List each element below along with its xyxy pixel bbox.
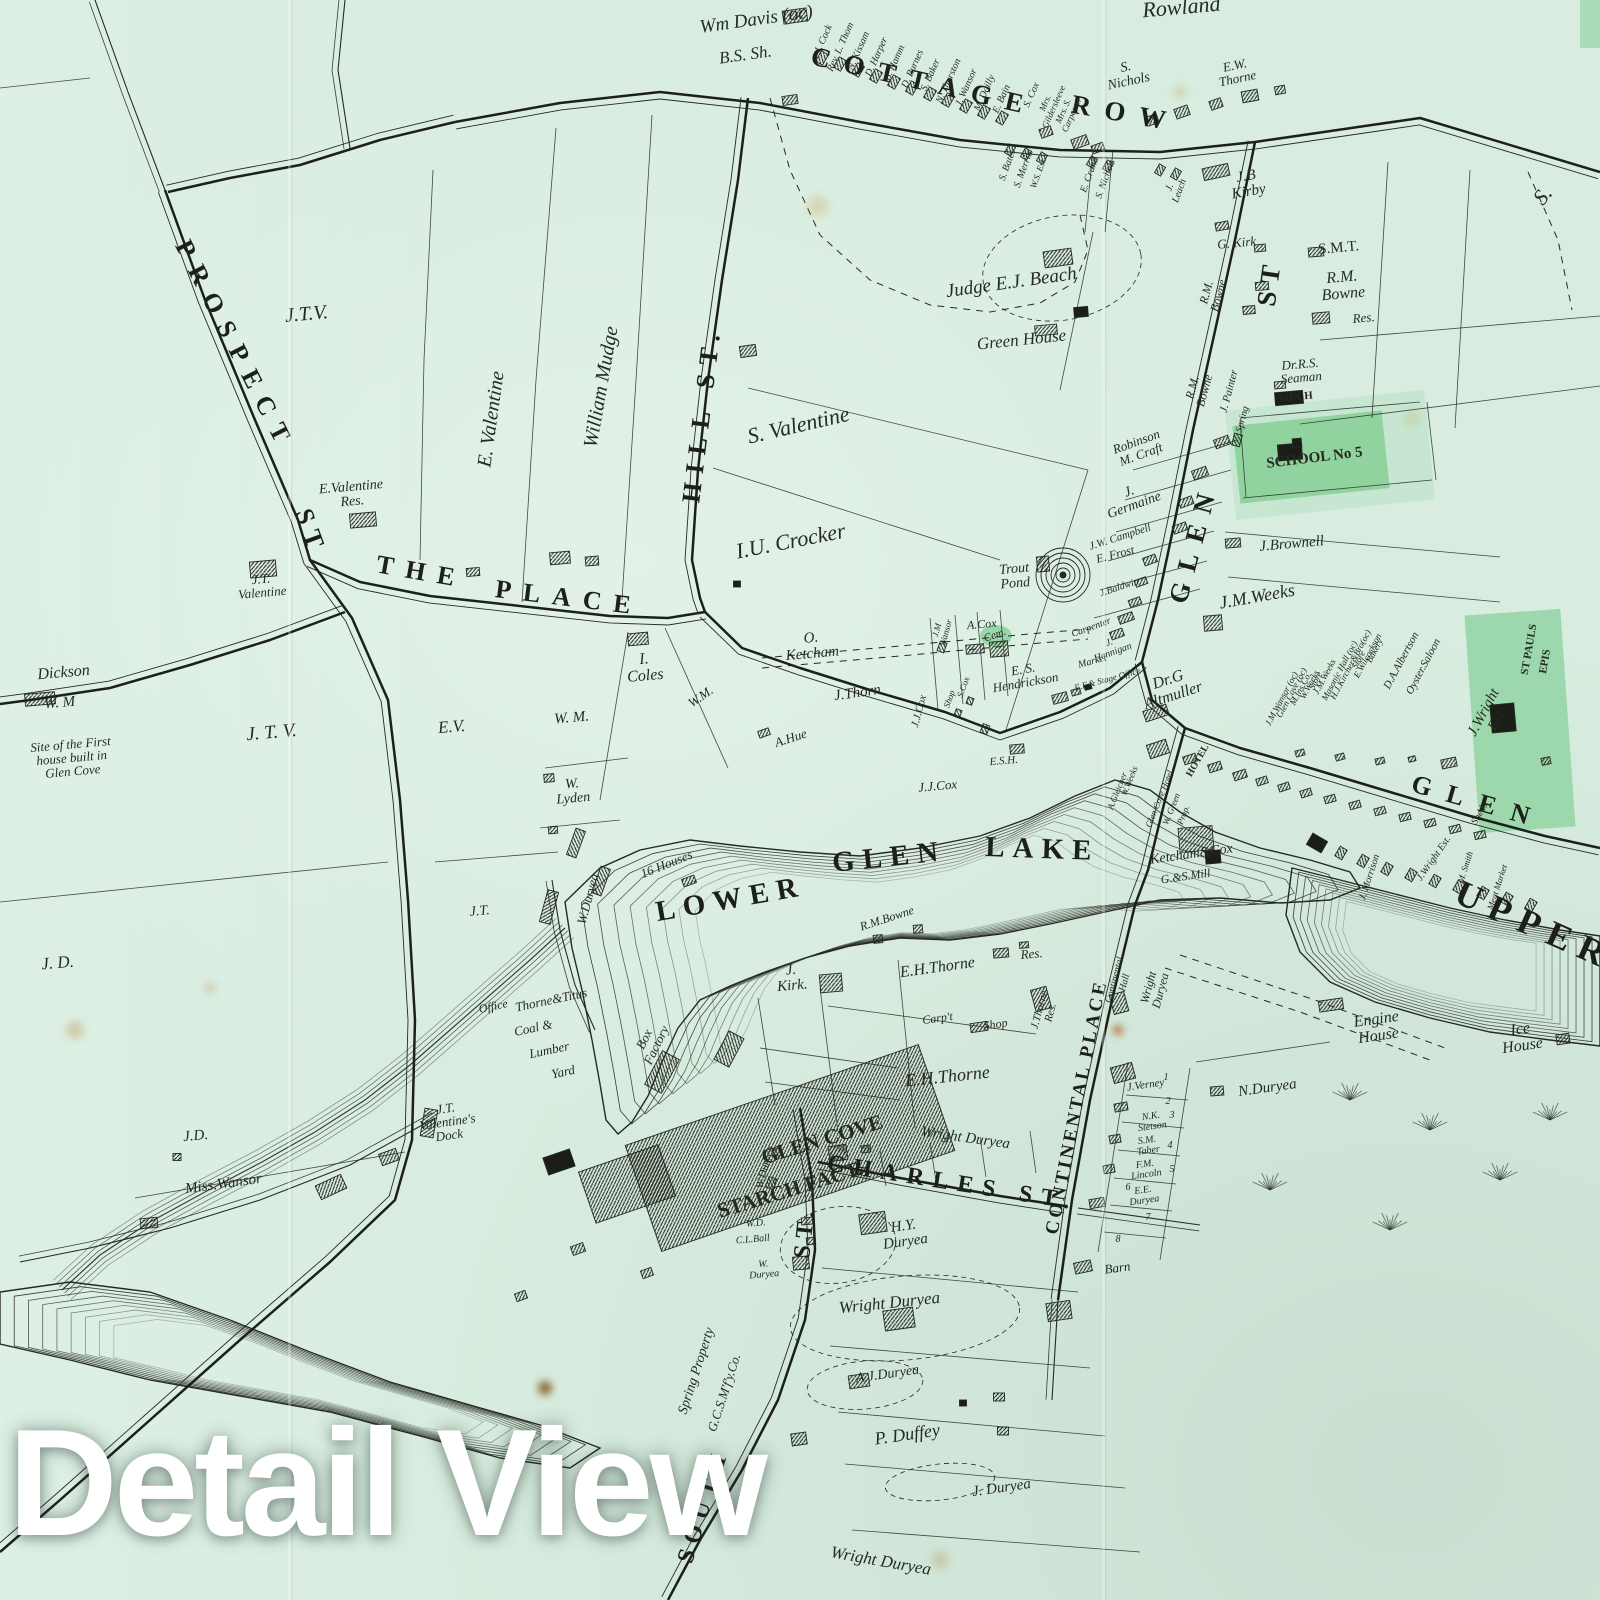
- parcel-line: [435, 852, 558, 862]
- map-label: Rowland: [1140, 0, 1222, 22]
- building: [1274, 85, 1285, 95]
- building: [567, 828, 586, 858]
- building: [1256, 776, 1269, 786]
- map-label: Site of the Firsthouse built inGlen Cove: [30, 733, 114, 782]
- svg-text:I.U. Crocker: I.U. Crocker: [733, 518, 848, 564]
- map-label: Barn: [1103, 1258, 1131, 1276]
- parcel-line: [1455, 170, 1470, 428]
- svg-text:S.Nichols: S.Nichols: [1102, 56, 1152, 94]
- svg-text:J. Duryea: J. Duryea: [971, 1476, 1032, 1500]
- map-label: J.T.Valentine: [236, 569, 287, 602]
- map-label: Green House: [976, 325, 1067, 353]
- building: [758, 728, 771, 738]
- svg-text:Office: Office: [477, 996, 509, 1016]
- building: [966, 697, 974, 706]
- map-label: S. Valentine: [745, 401, 852, 449]
- building: [782, 94, 798, 105]
- map-label: 2: [1166, 1096, 1171, 1107]
- map-image: COTTAGEROWPROSPECTSTTHEPLACEHILL ST.GLEN…: [0, 0, 1600, 1600]
- street-name-label: HILL ST.: [676, 324, 727, 505]
- svg-text:N.Duryea: N.Duryea: [1236, 1076, 1297, 1100]
- building: [791, 1432, 808, 1446]
- building: [1209, 98, 1223, 111]
- svg-text:3: 3: [1169, 1110, 1175, 1121]
- map-label: J. Painter: [1218, 368, 1241, 414]
- road-edge-bold: [0, 190, 415, 1552]
- building: [989, 641, 1008, 658]
- map-label: W.Duryea: [574, 871, 602, 925]
- svg-text:J.T.: J.T.: [469, 903, 490, 920]
- green-lot: [1580, 0, 1600, 48]
- building: [954, 709, 962, 718]
- svg-text:E.H.Thorne: E.H.Thorne: [898, 954, 976, 981]
- svg-text:H.Y.Duryea: H.Y.Duryea: [879, 1215, 929, 1253]
- street-name-label: PROSPECT: [169, 235, 301, 457]
- svg-text:R.M.Bowne: R.M.Bowne: [1319, 267, 1365, 304]
- svg-text:J. Painter: J. Painter: [1218, 368, 1241, 414]
- svg-text:Thorne&Titus: Thorne&Titus: [514, 985, 588, 1015]
- building: [1408, 756, 1416, 763]
- map-label: 8: [1116, 1234, 1121, 1245]
- map-label: H.Y.Duryea: [879, 1215, 929, 1253]
- map-label: F.M.Lincoln: [1128, 1157, 1162, 1183]
- map-label: W. M.: [554, 709, 590, 728]
- map-label: S.Cox: [955, 675, 972, 698]
- parcel-line: [522, 128, 556, 602]
- building: [543, 1149, 575, 1175]
- building: [1541, 757, 1551, 766]
- street-name-label: CHARLES ST.: [825, 1150, 1081, 1216]
- map-label: C.L.Ball: [735, 1233, 770, 1247]
- paper-stain: [204, 982, 216, 994]
- building: [1203, 615, 1222, 632]
- street-name-label: LOWER: [653, 870, 807, 928]
- building: [1225, 538, 1241, 548]
- map-label: R.M.Bowne: [857, 903, 916, 934]
- svg-text:William Mudge: William Mudge: [580, 324, 623, 449]
- svg-text:PROSPECT: PROSPECT: [169, 235, 301, 457]
- road-edge-thin: [338, 0, 350, 148]
- street-name-label: ROW: [1069, 89, 1182, 138]
- svg-text:C.L.Ball: C.L.Ball: [735, 1233, 770, 1247]
- building: [859, 1211, 888, 1234]
- parcel-line: [0, 862, 388, 902]
- parcel-line: [830, 1346, 1090, 1368]
- map-label: 4: [1168, 1140, 1173, 1151]
- svg-text:HILL ST.: HILL ST.: [676, 324, 727, 505]
- svg-text:E.E.Duryea: E.E.Duryea: [1126, 1183, 1160, 1209]
- map-label: Wm Davis (oc): [698, 1, 814, 38]
- svg-text:Miss.Wansor: Miss.Wansor: [183, 1171, 263, 1198]
- paper-stain: [1404, 410, 1420, 426]
- building: [550, 551, 571, 565]
- parcel-line: [852, 1530, 1140, 1552]
- parcel-line: [1126, 1095, 1188, 1100]
- building: [1278, 782, 1291, 792]
- road-edge-thin: [95, 0, 165, 190]
- grass-tuft: [1333, 1083, 1367, 1100]
- building: [1233, 769, 1248, 781]
- svg-text:8: 8: [1116, 1234, 1121, 1245]
- building: [1241, 89, 1259, 103]
- svg-text:J.Thorn: J.Thorn: [833, 682, 882, 704]
- map-label: J. Duryea: [971, 1476, 1032, 1500]
- svg-text:A.J.Duryea: A.J.Duryea: [854, 1363, 920, 1387]
- svg-text:Wm Davis (oc): Wm Davis (oc): [698, 1, 814, 38]
- svg-text:7: 7: [1146, 1212, 1152, 1223]
- building: [1381, 862, 1393, 876]
- svg-text:J.J.Cox: J.J.Cox: [918, 776, 958, 794]
- map-label: J.J.Cox: [909, 694, 929, 729]
- paper-crease: [1102, 0, 1105, 1600]
- map-label: Office: [477, 996, 509, 1016]
- map-label: 6: [1126, 1182, 1131, 1193]
- parcel-line: [1030, 1131, 1036, 1173]
- svg-text:Yard: Yard: [550, 1062, 577, 1082]
- building: [1210, 1086, 1224, 1096]
- map-label: R.M.Bowne: [1195, 274, 1229, 313]
- svg-text:W.Duryea: W.Duryea: [574, 871, 602, 925]
- building: [1306, 833, 1327, 853]
- parcel-line: [758, 998, 775, 1105]
- svg-text:S.Cox: S.Cox: [955, 675, 972, 698]
- map-label: E.W.Thorne: [1215, 54, 1258, 90]
- building: [1474, 830, 1486, 839]
- road-edge-thin: [89, 2, 159, 192]
- svg-text:O.Ketcham: O.Ketcham: [783, 628, 840, 664]
- svg-text:LAKE: LAKE: [985, 831, 1100, 867]
- svg-text:S.M.Taber: S.M.Taber: [1135, 1133, 1161, 1157]
- map-label: S.Nichols: [1102, 56, 1152, 94]
- map-label: J.Germaine: [1100, 475, 1163, 522]
- building: [994, 1393, 1005, 1401]
- building: [1374, 806, 1387, 816]
- map-label: Res.: [1019, 945, 1043, 962]
- building: [1243, 305, 1256, 314]
- building: [913, 925, 923, 934]
- svg-text:P. Duffey: P. Duffey: [872, 1420, 941, 1449]
- building: [1143, 554, 1158, 566]
- map-label: 7: [1146, 1212, 1152, 1223]
- map-label: RobinsonM. Craft: [1110, 426, 1167, 470]
- map-label: W.D.: [746, 1217, 767, 1230]
- map-label: Shop: [941, 688, 957, 709]
- building: [1335, 753, 1345, 761]
- building: [514, 1290, 527, 1301]
- svg-text:1: 1: [1164, 1072, 1169, 1083]
- svg-text:J.T.Valentine: J.T.Valentine: [236, 569, 287, 602]
- building: [960, 1400, 967, 1406]
- building: [1292, 438, 1302, 448]
- building: [1208, 761, 1223, 773]
- svg-text:PLACE: PLACE: [494, 574, 645, 621]
- svg-text:5: 5: [1170, 1164, 1175, 1175]
- map-label: J.Thorn: [833, 682, 882, 704]
- svg-text:CHARLES ST.: CHARLES ST.: [825, 1150, 1081, 1216]
- map-label: E.V.: [436, 716, 466, 737]
- svg-text:E.S.H.: E.S.H.: [988, 754, 1018, 769]
- building: [1312, 312, 1330, 324]
- building: [1556, 1033, 1570, 1045]
- building: [1202, 163, 1230, 180]
- svg-text:TroutPond: TroutPond: [998, 560, 1032, 592]
- road-edge-bold: [168, 122, 455, 192]
- svg-text:Judge E.J. Beach: Judge E.J. Beach: [944, 263, 1078, 302]
- parcel-line: [1372, 162, 1388, 418]
- map-label: J.T.Valentine'sDock: [417, 1097, 479, 1146]
- svg-text:Green House: Green House: [976, 325, 1067, 353]
- svg-text:6: 6: [1126, 1182, 1131, 1193]
- svg-text:J.BKirby: J.BKirby: [1227, 165, 1267, 202]
- building: [1213, 435, 1230, 449]
- building: [1071, 135, 1089, 150]
- map-label: E.S.H.: [988, 754, 1018, 769]
- building: [1036, 556, 1049, 572]
- map-label: E.ValentineRes.: [317, 477, 384, 512]
- paper-stain: [807, 195, 829, 217]
- map-label: J.Brownell: [1259, 533, 1325, 555]
- map-label: J.T.: [469, 903, 490, 920]
- map-label: WrightDuryea: [1136, 968, 1171, 1011]
- building: [378, 1148, 399, 1165]
- map-label: TroutPond: [998, 560, 1032, 592]
- svg-text:S.: S.: [1527, 181, 1557, 210]
- map-label: W. M: [43, 694, 77, 713]
- building: [349, 512, 376, 528]
- grass-tuft: [1483, 1163, 1517, 1180]
- road-edge-thin: [0, 192, 408, 1546]
- map-label: S.: [1527, 181, 1557, 210]
- svg-text:ST: ST: [289, 505, 333, 560]
- building: [1349, 800, 1362, 810]
- svg-text:Barn: Barn: [1103, 1258, 1131, 1276]
- street-name-label: LAKE: [985, 831, 1100, 867]
- map-label: B.S. Sh.: [718, 41, 773, 67]
- street-name-label: PLACE: [494, 574, 645, 621]
- svg-text:Wright Duryea: Wright Duryea: [829, 1542, 932, 1578]
- parcel-line: [1160, 1068, 1190, 1260]
- svg-text:Coal &: Coal &: [513, 1016, 555, 1039]
- building: [1110, 628, 1125, 640]
- svg-text:W.Duryea: W.Duryea: [747, 1258, 780, 1282]
- paper-crease: [291, 0, 293, 1600]
- map-label: Dr.R.S.Seaman: [1279, 355, 1323, 387]
- svg-text:W.Lyden: W.Lyden: [554, 775, 591, 807]
- grass-tuft: [1373, 1213, 1407, 1230]
- building: [570, 1243, 585, 1256]
- svg-text:ROW: ROW: [1069, 89, 1182, 138]
- building: [548, 826, 558, 834]
- building: [714, 1031, 744, 1067]
- map-label: Thorne&Titus: [514, 985, 588, 1015]
- road-edge-bold: [0, 612, 345, 704]
- lake-hachure: [1286, 868, 1600, 1046]
- map-label: A.Hue: [772, 725, 809, 750]
- paper-crease: [288, 0, 291, 1600]
- svg-text:B.S. Sh.: B.S. Sh.: [718, 41, 773, 67]
- svg-text:Lumber: Lumber: [527, 1038, 572, 1061]
- map-label: W.Duryea: [747, 1258, 780, 1282]
- grass-tuft: [1253, 1173, 1287, 1190]
- svg-text:E.V.: E.V.: [436, 716, 466, 737]
- svg-text:I.Coles: I.Coles: [625, 649, 664, 686]
- parcel-line: [822, 1268, 1078, 1292]
- svg-text:N.K.Stetson: N.K.Stetson: [1136, 1109, 1168, 1134]
- svg-text:Site of the Firsthouse built i: Site of the Firsthouse built inGlen Cove: [30, 733, 114, 782]
- building: [1215, 221, 1229, 231]
- building: [1046, 1300, 1072, 1321]
- parcel-line: [1196, 1042, 1330, 1062]
- building: [1052, 692, 1069, 705]
- map-label: R.M.Bowne: [1319, 267, 1365, 304]
- svg-text:S. Valentine: S. Valentine: [745, 401, 852, 449]
- svg-text:Res.: Res.: [1019, 945, 1043, 962]
- map-label: Dr.GAltmuller: [1136, 662, 1206, 713]
- map-label: E. Valentine: [473, 370, 508, 470]
- svg-text:R.M.Bowne: R.M.Bowne: [1195, 274, 1229, 313]
- map-label: 5: [1170, 1164, 1175, 1175]
- paper-stain: [1113, 1025, 1123, 1035]
- map-label: E.H.Thorne: [898, 954, 976, 981]
- map-label: I.Coles: [625, 649, 664, 686]
- svg-text:Rowland: Rowland: [1140, 0, 1222, 22]
- map-label: E.E.Duryea: [1126, 1183, 1160, 1209]
- building: [734, 581, 741, 587]
- map-label: 1: [1164, 1072, 1169, 1083]
- building: [1295, 749, 1305, 757]
- building: [1300, 788, 1313, 798]
- stream-line: [71, 938, 574, 1300]
- building: [993, 948, 1009, 958]
- svg-text:J.J.Cox: J.J.Cox: [909, 694, 929, 729]
- building: [1424, 818, 1436, 827]
- watermark-text: Detail View: [8, 1396, 764, 1571]
- building: [1449, 824, 1461, 833]
- svg-text:G. Kirk: G. Kirk: [1217, 233, 1257, 251]
- svg-text:J. D.: J. D.: [40, 952, 74, 974]
- map-label: O.Ketcham: [783, 628, 840, 664]
- map-label: J.BKirby: [1227, 165, 1267, 202]
- map-label: G. Kirk: [1217, 233, 1257, 251]
- map-label: S.M.Taber: [1135, 1133, 1161, 1157]
- svg-text:W. M.: W. M.: [554, 709, 590, 728]
- map-label: J.Kirk.: [774, 961, 808, 995]
- parcel-line: [0, 78, 90, 88]
- paper-stain: [931, 1551, 949, 1569]
- svg-text:G.&S.Mill: G.&S.Mill: [1160, 866, 1212, 887]
- paper-stain: [1174, 86, 1186, 98]
- trout-pond-ring: [1060, 572, 1066, 578]
- paper-crease: [1105, 0, 1107, 1600]
- building: [585, 556, 599, 566]
- building: [1118, 612, 1135, 625]
- map-label: A.J.Duryea: [854, 1363, 920, 1387]
- grass-tuft: [1413, 1113, 1447, 1130]
- street-name-label: GLEN: [831, 835, 948, 879]
- map-label: J. D.: [40, 952, 74, 974]
- map-label: J.J.Cox: [918, 776, 958, 794]
- map-label: G.&S.Mill: [1160, 866, 1212, 887]
- building: [173, 1154, 181, 1161]
- building: [739, 344, 756, 357]
- building: [1074, 306, 1089, 317]
- map-label: I.U. Crocker: [733, 518, 848, 564]
- paper-stain: [538, 1381, 552, 1395]
- building: [1146, 739, 1169, 758]
- map-label: Carp't: [921, 1009, 954, 1027]
- map-label: 3: [1169, 1110, 1175, 1121]
- svg-text:WrightDuryea: WrightDuryea: [1136, 968, 1171, 1011]
- building: [628, 632, 649, 646]
- building: [819, 973, 842, 993]
- parcel-line: [1104, 1232, 1166, 1238]
- building: [1114, 1102, 1128, 1112]
- svg-text:Carp't: Carp't: [921, 1009, 954, 1027]
- map-label: Dickson: [36, 662, 91, 684]
- building: [998, 1427, 1009, 1435]
- map-label: S.M.T.: [1318, 238, 1360, 258]
- map-label: Res.: [1351, 309, 1375, 326]
- svg-text:Shop: Shop: [941, 688, 957, 709]
- svg-text:E. S.Hendrickson: E. S.Hendrickson: [988, 656, 1059, 696]
- map-label: W.Lyden: [554, 775, 591, 807]
- svg-text:S.M.T.: S.M.T.: [1318, 238, 1360, 258]
- building: [1429, 874, 1441, 888]
- map-label: N.K.Stetson: [1136, 1109, 1168, 1134]
- svg-text:Dickson: Dickson: [36, 662, 91, 684]
- building: [1010, 744, 1025, 754]
- map-label: N.Duryea: [1236, 1076, 1297, 1100]
- lake-hachure: [1293, 872, 1592, 1041]
- map-label: EngineHouse: [1352, 1008, 1403, 1048]
- building: [315, 1174, 347, 1199]
- map-label: P. Duffey: [872, 1420, 941, 1449]
- grass-tuft: [1533, 1103, 1567, 1120]
- svg-text:W.D.: W.D.: [746, 1217, 767, 1230]
- svg-text:J.Germaine: J.Germaine: [1100, 475, 1163, 522]
- building: [966, 644, 985, 655]
- map-label: Lumber: [527, 1038, 572, 1061]
- svg-text:J.Kirk.: J.Kirk.: [774, 961, 808, 995]
- map-canvas: COTTAGEROWPROSPECTSTTHEPLACEHILL ST.GLEN…: [0, 0, 1600, 1600]
- street-name-label: ST: [289, 505, 333, 560]
- svg-text:4: 4: [1168, 1140, 1173, 1151]
- map-label: E. S.Hendrickson: [988, 656, 1059, 696]
- map-label: Miss.Wansor: [183, 1171, 263, 1198]
- parcel-line: [545, 758, 628, 768]
- paper-stain: [66, 1021, 84, 1039]
- building: [1154, 164, 1165, 176]
- building: [466, 567, 480, 576]
- parcel-line: [420, 170, 433, 560]
- building: [873, 935, 883, 944]
- svg-text:Dr.GAltmuller: Dr.GAltmuller: [1136, 662, 1206, 713]
- svg-text:LOWER: LOWER: [653, 870, 807, 928]
- svg-text:J.M.Weeks: J.M.Weeks: [1218, 580, 1297, 613]
- building: [544, 774, 555, 783]
- svg-text:ST: ST: [1251, 255, 1288, 308]
- building: [1109, 1134, 1121, 1144]
- svg-text:E.W.Thorne: E.W.Thorne: [1215, 54, 1258, 90]
- svg-text:A.Hue: A.Hue: [772, 725, 809, 750]
- map-label: William Mudge: [580, 324, 623, 449]
- svg-text:2: 2: [1166, 1096, 1171, 1107]
- map-label: J.D.: [183, 1127, 209, 1145]
- map-label: Yard: [550, 1062, 577, 1082]
- street-name-label: ST: [1251, 255, 1288, 308]
- map-label: Wright Duryea: [829, 1542, 932, 1578]
- building: [1318, 998, 1343, 1012]
